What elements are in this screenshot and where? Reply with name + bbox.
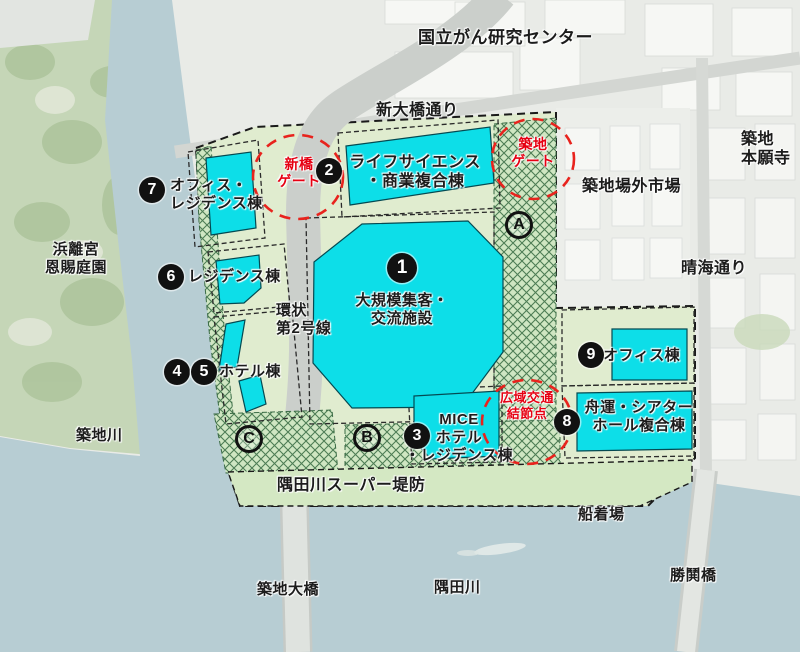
label-cancer-center: 国立がん研究センター xyxy=(418,28,593,48)
city-blocks-right xyxy=(700,124,796,460)
badge-facility-3: 3 xyxy=(404,423,430,449)
label-kachidoki-bridge: 勝鬨橋 xyxy=(670,567,717,585)
badge-facility-8: 8 xyxy=(554,409,580,435)
label-shin-ohashi-dori: 新大橋通り xyxy=(376,101,459,120)
label-tsukiji-gate: 築地 ゲート xyxy=(504,136,562,170)
label-hamarikyu: 浜離宮 恩賜庭園 xyxy=(34,241,118,277)
badge-facility-7: 7 xyxy=(139,177,165,203)
badge-facility-5: 5 xyxy=(191,359,217,385)
label-facility-4-5: ホテル棟 xyxy=(219,363,281,381)
jogai-market-blocks xyxy=(565,124,682,280)
label-tsukiji-bridge: 築地大橋 xyxy=(257,581,319,599)
label-super-levee: 隅田川スーパー堤防 xyxy=(277,476,425,495)
label-boat-dock: 船着場 xyxy=(578,506,625,524)
badge-facility-9: 9 xyxy=(578,342,604,368)
zone-marker-c: C xyxy=(235,425,263,453)
badge-facility-1: 1 xyxy=(387,253,417,283)
zone-marker-b: B xyxy=(353,424,381,452)
badge-facility-4: 4 xyxy=(164,359,190,385)
zone-marker-a: A xyxy=(505,211,533,239)
label-sumida-river: 隅田川 xyxy=(434,579,481,597)
label-facility-8: 舟運・シアター ホール複合棟 xyxy=(579,399,699,435)
label-facility-7: オフィス・ レジデンス棟 xyxy=(170,177,263,213)
label-facility-1: 大規模集客・ 交流施設 xyxy=(342,292,462,328)
label-ring-road-2: 環状 第2号線 xyxy=(276,302,331,338)
site-plan-map: 国立がん研究センター 新大橋通り 築地 本願寺 築地場外市場 晴海通り 浜離宮 … xyxy=(0,0,800,652)
label-harumi-dori: 晴海通り xyxy=(681,259,747,278)
label-jogai-market: 築地場外市場 xyxy=(582,177,681,196)
label-tsukiji-honganji: 築地 本願寺 xyxy=(741,130,791,168)
label-facility-2: ライフサイエンス ・商業複合棟 xyxy=(345,153,485,191)
badge-facility-6: 6 xyxy=(158,264,184,290)
label-facility-9: オフィス棟 xyxy=(603,347,680,365)
label-facility-6: レジデンス棟 xyxy=(188,268,281,286)
badge-facility-2: 2 xyxy=(316,158,342,184)
label-tsukiji-river: 築地川 xyxy=(76,427,123,445)
